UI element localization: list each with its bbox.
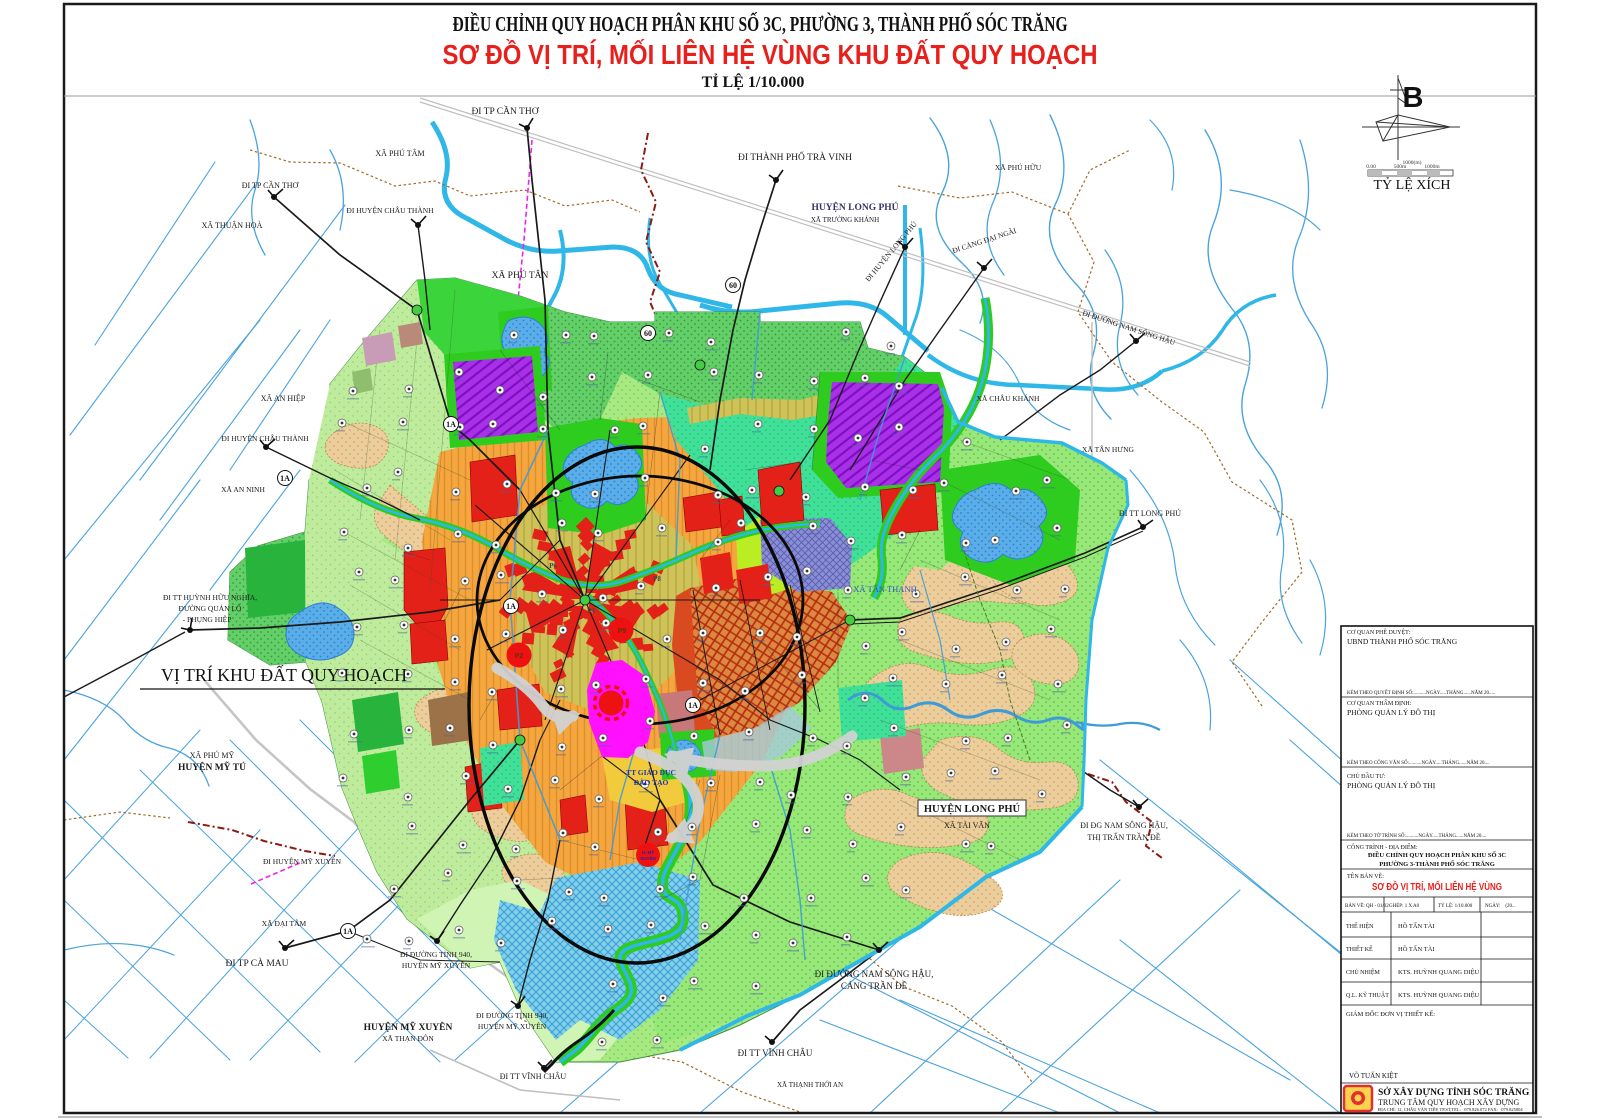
svg-text:TÊN BẢN VẼ:: TÊN BẢN VẼ: (1347, 872, 1384, 880)
svg-text:VỊ TRÍ KHU ĐẤT QUY HOẠCH: VỊ TRÍ KHU ĐẤT QUY HOẠCH (161, 665, 407, 685)
svg-text:TỈ LỆ 1/10.000: TỈ LỆ 1/10.000 (702, 72, 805, 91)
svg-text:NGÀY: (20...: NGÀY: (20... (1485, 903, 1516, 909)
svg-text:XÃ THẠN ĐÔN: XÃ THẠN ĐÔN (382, 1033, 434, 1043)
svg-text:ĐI TT HUỲNH HỮU NGHĨA,: ĐI TT HUỲNH HỮU NGHĨA, (163, 592, 257, 602)
svg-text:GIÁM ĐỐC ĐƠN VỊ THIẾT KẾ:: GIÁM ĐỐC ĐƠN VỊ THIẾT KẾ: (1346, 1010, 1435, 1018)
svg-text:XÃ TRƯỜNG KHÁNH: XÃ TRƯỜNG KHÁNH (811, 216, 879, 224)
svg-text:500m: 500m (1394, 164, 1407, 170)
svg-text:TỶ LỆ XÍCH: TỶ LỆ XÍCH (1374, 176, 1451, 193)
svg-text:KÈM THEO TỜ TRÌNH SỐ:.........: KÈM THEO TỜ TRÌNH SỐ:..........NGÀY.....… (1347, 833, 1486, 839)
svg-text:KÈM THEO QUYẾT ĐỊNH SỐ:.......: KÈM THEO QUYẾT ĐỊNH SỐ:..........NGÀY...… (1347, 690, 1495, 696)
svg-text:ĐI ĐG NAM SÔNG HẬU,: ĐI ĐG NAM SÔNG HẬU, (1080, 820, 1168, 830)
svg-text:KTS. HUỲNH QUANG DIỆU: KTS. HUỲNH QUANG DIỆU (1398, 991, 1480, 999)
svg-text:PHƯỜNG 3-THÀNH PHỐ SÓC TRĂNG: PHƯỜNG 3-THÀNH PHỐ SÓC TRĂNG (1379, 860, 1495, 868)
svg-text:XÃ AN HIỆP: XÃ AN HIỆP (261, 393, 306, 403)
svg-text:KÈM THEO CÔNG VĂN SỐ:.........: KÈM THEO CÔNG VĂN SỐ:..........NGÀY.....… (1347, 760, 1490, 766)
svg-text:XÃ TÂN THẠNH: XÃ TÂN THẠNH (853, 584, 916, 594)
svg-text:SỞ XÂY DỰNG TỈNH SÓC TRĂNG: SỞ XÂY DỰNG TỈNH SÓC TRĂNG (1378, 1086, 1530, 1098)
svg-text:XÃ PHÚ MỸ: XÃ PHÚ MỸ (190, 750, 235, 760)
svg-text:CHỦ NHIỆM: CHỦ NHIỆM (1346, 968, 1380, 976)
svg-text:ĐI TP CẦN THƠ: ĐI TP CẦN THƠ (242, 180, 300, 190)
svg-text:BẢN VẼ: QH - 01/02: BẢN VẼ: QH - 01/02 (1345, 903, 1389, 909)
svg-text:HUYỆN MỸ XUYÊN: HUYỆN MỸ XUYÊN (478, 1021, 547, 1031)
svg-text:CHỦ ĐẦU TƯ:: CHỦ ĐẦU TƯ: (1347, 772, 1386, 780)
svg-text:CÔNG TRÌNH - ĐỊA ĐIỂM:: CÔNG TRÌNH - ĐỊA ĐIỂM: (1347, 843, 1418, 851)
svg-text:- PHỤNG HIỆP: - PHỤNG HIỆP (183, 614, 232, 624)
svg-text:P6: P6 (549, 562, 557, 570)
svg-text:XÃ ĐẠI TÂM: XÃ ĐẠI TÂM (262, 918, 307, 928)
svg-text:XÃ CHÂU KHÁNH: XÃ CHÂU KHÁNH (977, 393, 1040, 403)
svg-text:ĐI ĐƯỜNG TỈNH 940,: ĐI ĐƯỜNG TỈNH 940, (476, 1010, 548, 1020)
svg-text:UBND THÀNH PHỐ SÓC TRĂNG: UBND THÀNH PHỐ SÓC TRĂNG (1347, 636, 1458, 646)
svg-text:ĐI TT LONG PHÚ: ĐI TT LONG PHÚ (1119, 508, 1181, 518)
svg-text:ĐI ĐƯỜNG TỈNH 940,: ĐI ĐƯỜNG TỈNH 940, (400, 949, 472, 959)
svg-text:1A: 1A (688, 701, 698, 710)
svg-text:TT GIÁO DỤC: TT GIÁO DỤC (626, 767, 676, 777)
svg-text:HUYỆN MỸ XUYÊN: HUYỆN MỸ XUYÊN (402, 960, 471, 970)
svg-text:ĐIỀU CHỈNH QUY HOẠCH PHÂN KHU: ĐIỀU CHỈNH QUY HOẠCH PHÂN KHU SỐ 3C (1368, 851, 1507, 859)
svg-text:XÃ TÂN HƯNG: XÃ TÂN HƯNG (1082, 444, 1135, 454)
svg-text:XÃ PHÚ TÂN: XÃ PHÚ TÂN (492, 269, 549, 281)
svg-text:KTS. HUỲNH QUANG DIỆU: KTS. HUỲNH QUANG DIỆU (1398, 968, 1480, 976)
svg-text:HỒ TẤN TÀI: HỒ TẤN TÀI (1398, 922, 1435, 930)
svg-text:XÃ THUẬN HOÀ: XÃ THUẬN HOÀ (202, 220, 263, 230)
svg-text:1A: 1A (506, 602, 516, 611)
svg-text:CƠ QUAN PHÊ DUYỆT:: CƠ QUAN PHÊ DUYỆT: (1347, 628, 1411, 636)
svg-text:PHÒNG QUẢN LÝ ĐÔ THỊ: PHÒNG QUẢN LÝ ĐÔ THỊ (1347, 707, 1436, 717)
svg-text:P4: P4 (587, 607, 595, 615)
svg-text:60: 60 (729, 281, 737, 290)
svg-text:ĐÀO TẠO: ĐÀO TẠO (634, 777, 669, 787)
svg-text:TỶ LỆ: 1/10.000: TỶ LỆ: 1/10.000 (1438, 903, 1473, 909)
svg-text:1A: 1A (343, 927, 353, 936)
svg-text:ĐI HUYỆN MỸ XUYÊN: ĐI HUYỆN MỸ XUYÊN (263, 856, 342, 866)
svg-text:HỒ TẤN TÀI: HỒ TẤN TÀI (1398, 945, 1435, 953)
svg-text:60: 60 (644, 329, 652, 338)
svg-text:VÕ TUẤN KIỆT: VÕ TUẤN KIỆT (1349, 1072, 1399, 1080)
svg-text:Q.L. KỸ THUẬT: Q.L. KỸ THUẬT (1346, 991, 1389, 999)
svg-text:SƠ ĐỒ VỊ TRÍ, MỐI LIÊN HỆ VÙNG: SƠ ĐỒ VỊ TRÍ, MỐI LIÊN HỆ VÙNG (1372, 879, 1502, 893)
svg-text:ĐI TT VĨNH CHÂU: ĐI TT VĨNH CHÂU (738, 1048, 813, 1058)
svg-text:P2: P2 (515, 653, 524, 660)
svg-text:ĐI HUYỆN CHÂU THÀNH: ĐI HUYỆN CHÂU THÀNH (221, 433, 309, 443)
svg-text:ĐI HUYỆN CHÂU THÀNH: ĐI HUYỆN CHÂU THÀNH (346, 205, 434, 215)
svg-text:1A: 1A (280, 474, 290, 483)
svg-text:CẢNG TRẦN ĐỀ: CẢNG TRẦN ĐỀ (841, 981, 908, 991)
svg-text:HUYỆN LONG PHÚ: HUYỆN LONG PHÚ (924, 802, 1021, 815)
svg-text:XÃ PHÚ HỮU: XÃ PHÚ HỮU (995, 162, 1042, 172)
svg-text:THỊ TRẤN TRẦN ĐỀ: THỊ TRẤN TRẦN ĐỀ (1087, 832, 1160, 842)
svg-text:SƠ ĐỒ VỊ TRÍ, MỐI LIÊN HỆ VÙNG: SƠ ĐỒ VỊ TRÍ, MỐI LIÊN HỆ VÙNG KHU ĐẤT Q… (443, 38, 1098, 70)
svg-text:THỂ HIỆN: THỂ HIỆN (1346, 922, 1374, 930)
svg-text:XÃ THẠNH THỚI AN: XÃ THẠNH THỚI AN (777, 1081, 843, 1089)
svg-text:XUYÊN: XUYÊN (640, 854, 656, 861)
svg-text:ĐIỀU CHỈNH QUY HOẠCH PHÂN KHU: ĐIỀU CHỈNH QUY HOẠCH PHÂN KHU SỐ 3C, PHƯ… (453, 12, 1068, 36)
svg-text:1000m: 1000m (1424, 164, 1440, 170)
svg-text:XÃ AN NINH: XÃ AN NINH (221, 484, 265, 494)
svg-text:XÃ TÀI VĂN: XÃ TÀI VĂN (944, 820, 990, 830)
svg-text:0.00: 0.00 (1366, 164, 1376, 170)
svg-text:ĐI TP CÀ MAU: ĐI TP CÀ MAU (225, 957, 288, 969)
svg-text:THIẾT KẾ: THIẾT KẾ (1346, 945, 1373, 953)
svg-text:ĐI TT VĨNH CHÂU: ĐI TT VĨNH CHÂU (500, 1071, 567, 1081)
svg-text:B: B (1403, 82, 1424, 114)
svg-text:PHÒNG QUẢN LÝ ĐÔ THỊ: PHÒNG QUẢN LÝ ĐÔ THỊ (1347, 780, 1436, 790)
svg-text:TRUNG TÂM QUY HOẠCH XÂY DỰNG: TRUNG TÂM QUY HOẠCH XÂY DỰNG (1378, 1097, 1519, 1107)
svg-text:GHÉP: 1 X A0: GHÉP: 1 X A0 (1389, 903, 1420, 909)
svg-text:P8: P8 (653, 575, 661, 583)
svg-text:XÃ PHÚ TÂM: XÃ PHÚ TÂM (375, 148, 424, 158)
svg-text:ĐƯỜNG QUẢN LỘ: ĐƯỜNG QUẢN LỘ (179, 603, 242, 613)
svg-text:CƠ QUAN THẨM ĐỊNH:: CƠ QUAN THẨM ĐỊNH: (1347, 699, 1412, 707)
svg-text:H. MỸ: H. MỸ (642, 849, 655, 855)
svg-text:1A: 1A (446, 420, 456, 429)
svg-text:P9: P9 (618, 628, 627, 635)
svg-text:ĐI ĐƯỜNG NAM SÔNG HẬU,: ĐI ĐƯỜNG NAM SÔNG HẬU, (815, 969, 934, 979)
